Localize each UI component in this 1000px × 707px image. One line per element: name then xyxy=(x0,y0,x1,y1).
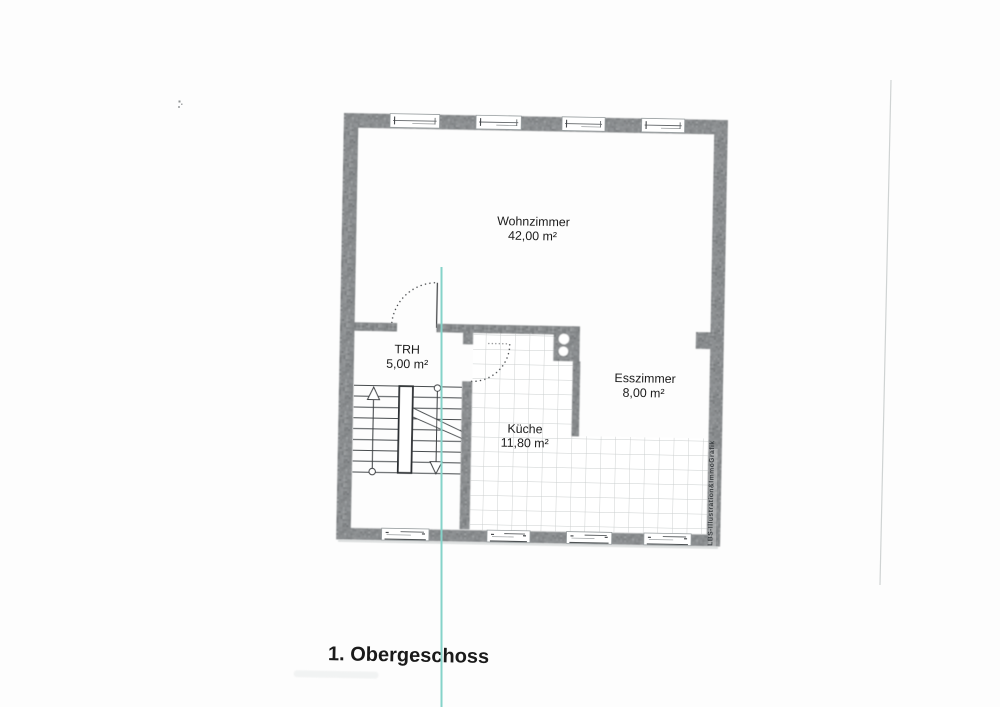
svg-text:11,80 m²: 11,80 m² xyxy=(501,436,549,451)
svg-text:8,00 m²: 8,00 m² xyxy=(622,386,664,401)
svg-text:42,00 m²: 42,00 m² xyxy=(508,229,557,244)
svg-text:1. Obergeschoss: 1. Obergeschoss xyxy=(328,643,490,668)
svg-text:5,00 m²: 5,00 m² xyxy=(386,357,428,372)
svg-text:Wohnzimmer: Wohnzimmer xyxy=(497,214,570,229)
svg-text:Küche: Küche xyxy=(507,422,542,437)
svg-text:Esszimmer: Esszimmer xyxy=(614,371,676,386)
svg-text:TRH: TRH xyxy=(394,342,420,356)
